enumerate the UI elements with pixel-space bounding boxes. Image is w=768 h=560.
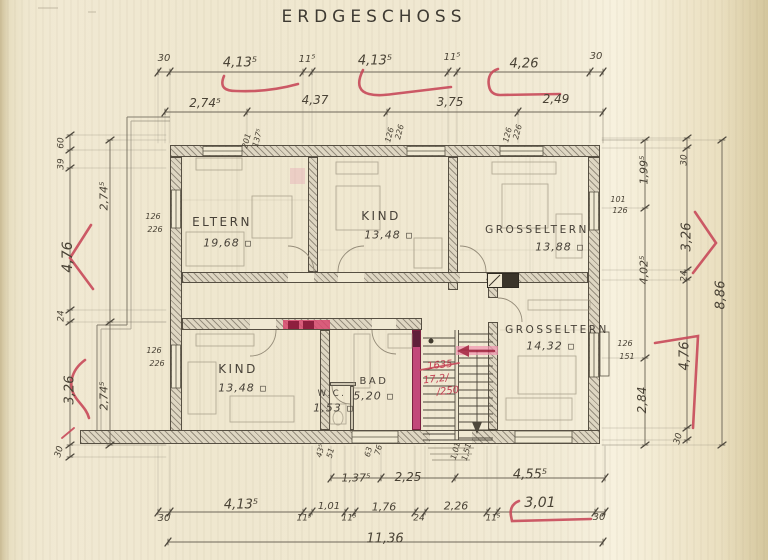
dim-label: 226: [149, 360, 164, 368]
dim-label: 3,26: [64, 376, 77, 405]
dim-label: 24: [681, 270, 690, 281]
red-check-mark: [359, 70, 451, 95]
red-chevron-mark: [693, 212, 716, 273]
dim-label: 30: [158, 54, 171, 64]
corner-marks: [38, 8, 96, 12]
dim-label: 30: [681, 154, 690, 165]
chimney-detail: [489, 275, 500, 286]
room-name-label: KIND: [361, 210, 401, 222]
dim-label: 39: [58, 158, 67, 169]
room-area-label: 13,88 ▫: [535, 242, 584, 253]
dim-label: 30: [590, 52, 603, 62]
dim-label: 101: [610, 196, 625, 204]
dim-label: 4,37: [302, 94, 329, 106]
dim-label: 24: [413, 515, 424, 524]
arrowhead-icon: [472, 422, 482, 434]
dim-label: 126: [617, 340, 632, 348]
dim-label: 11⁵: [296, 515, 311, 524]
room-name-label: KIND: [218, 363, 258, 375]
dim-label: 60: [58, 137, 67, 148]
entrance-opening: [430, 431, 472, 443]
room-area-label: 19,68 ▫: [203, 238, 252, 249]
dim-label: 2,74⁵: [99, 182, 110, 211]
dim-label: 11⁵: [299, 55, 316, 65]
dim-label: 226: [147, 226, 162, 234]
red-tick: [62, 428, 74, 438]
dim-label: 2,25: [395, 471, 422, 483]
dim-label: 126: [612, 207, 627, 215]
room-name-label: ELTERN: [192, 216, 252, 228]
dim-label: 11⁵: [341, 515, 356, 524]
dim-label: 3,75: [437, 96, 464, 108]
dim-label: 8,86: [715, 281, 728, 310]
room-name-label: GROSSELTERN: [505, 325, 609, 336]
floor-plan-page: ERDGESCHOSS: [0, 0, 768, 560]
dim-label: 1,99⁵: [639, 156, 650, 185]
dim-label: 1,01: [318, 502, 340, 512]
dim-label: 4,26: [510, 58, 539, 71]
plan-drawing: [0, 0, 768, 560]
red-check-mark: [222, 76, 298, 91]
dim-label: 1,76: [372, 502, 397, 513]
stair-start-dot: [429, 339, 434, 344]
room-area-label: 13,48 ▫: [364, 230, 413, 241]
dim-label: 11⁵: [485, 515, 500, 524]
dim-label: 2,49: [543, 93, 570, 105]
dim-label: 2,74⁵: [99, 382, 110, 411]
room-area-label: 13,48 ▫: [218, 383, 267, 394]
dim-label: 30: [158, 514, 171, 524]
dim-label: 11,36: [366, 533, 403, 546]
dim-label: 4,76: [679, 342, 692, 371]
door-openings: [250, 273, 486, 329]
dim-label: 3,01: [524, 496, 555, 510]
dim-label: 24: [58, 310, 67, 321]
dim-label: 4,13⁵: [358, 55, 392, 68]
dim-label: 4,02⁵: [639, 256, 650, 285]
red-smudge: [290, 168, 305, 184]
dim-label: 11⁵: [444, 53, 461, 63]
dim-label: 4,13⁵: [223, 57, 257, 70]
room-name-label: GROSSELTERN: [485, 225, 589, 236]
dim-label: 2,84: [636, 387, 648, 414]
dim-label: 126: [146, 347, 161, 355]
dim-label: 4,76: [61, 241, 75, 272]
room-area-label: 14,32 ▫: [526, 341, 575, 352]
dim-label: 2,74⁵: [189, 97, 221, 109]
dim-label: 30: [593, 513, 606, 523]
room-name-label: BAD: [360, 377, 389, 387]
dim-label: 3,26: [681, 223, 694, 252]
dim-label: 2,26: [444, 501, 469, 512]
room-name-label: W.C.: [318, 390, 347, 399]
dim-label: 151: [619, 353, 634, 361]
dim-label: 1,37⁵: [342, 473, 371, 484]
dim-label: 4,13⁵: [224, 499, 258, 512]
dim-label: 4,55⁵: [513, 469, 547, 482]
dim-label: 126: [145, 213, 160, 221]
window-sill-box: [600, 332, 609, 376]
room-area-label: 5,20 ▫: [353, 391, 394, 402]
room-area-label: 1,53 ▫: [313, 403, 354, 414]
